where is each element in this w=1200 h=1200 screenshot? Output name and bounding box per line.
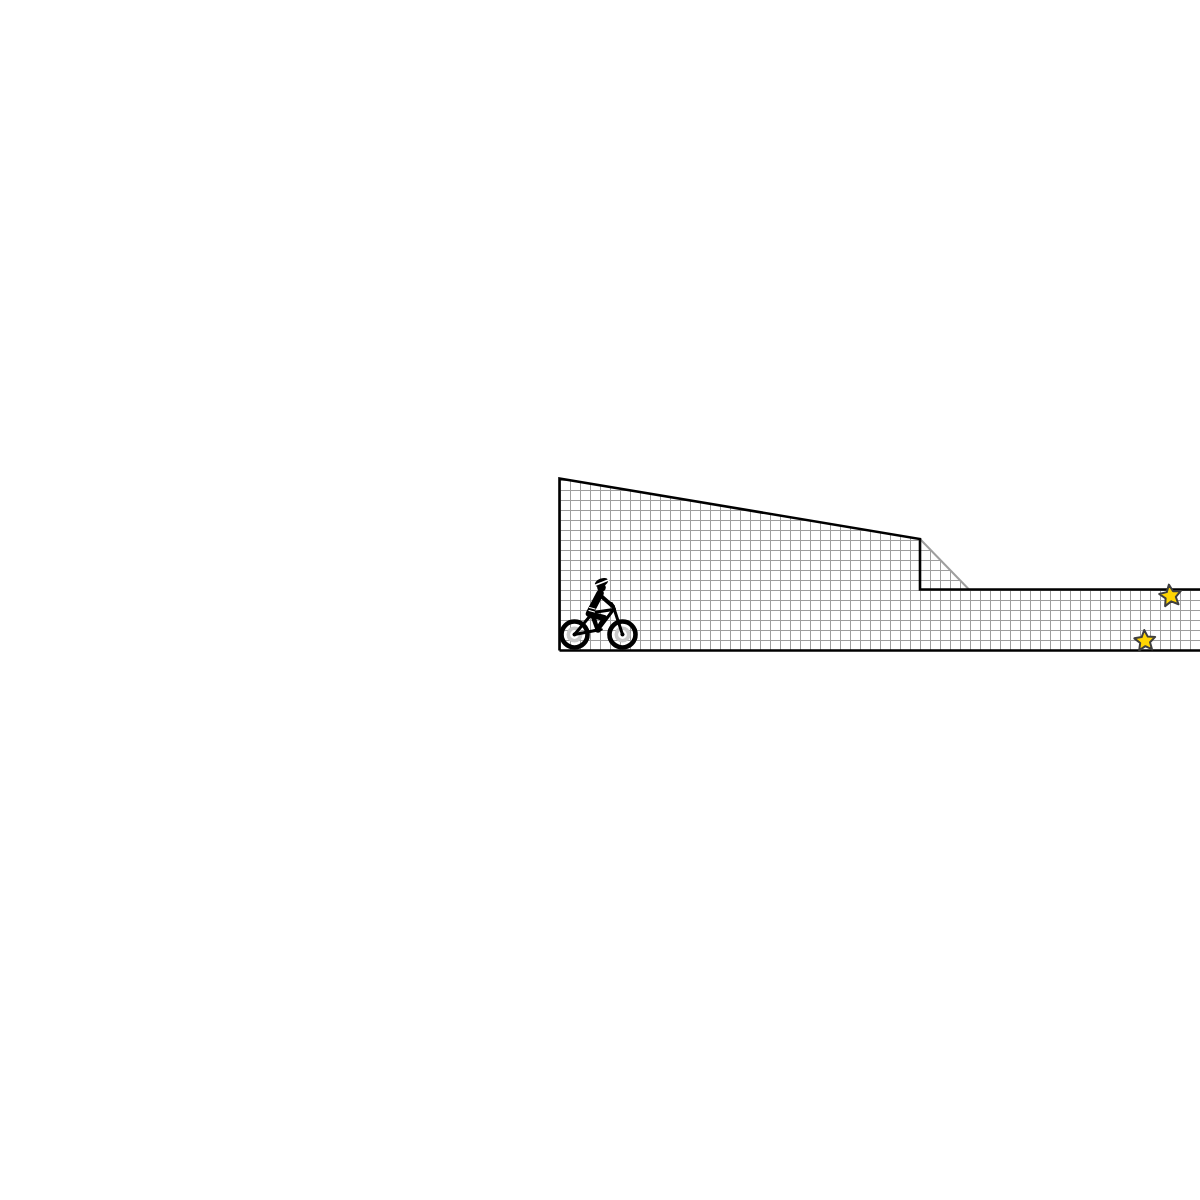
game-stage[interactable] bbox=[0, 0, 1200, 1200]
rider-foot bbox=[595, 630, 602, 631]
rear-axle bbox=[573, 633, 577, 637]
game-scene[interactable] bbox=[0, 0, 1200, 1200]
terrain bbox=[560, 479, 1200, 651]
front-axle bbox=[621, 633, 625, 637]
terrain-grid-texture bbox=[560, 479, 1200, 651]
